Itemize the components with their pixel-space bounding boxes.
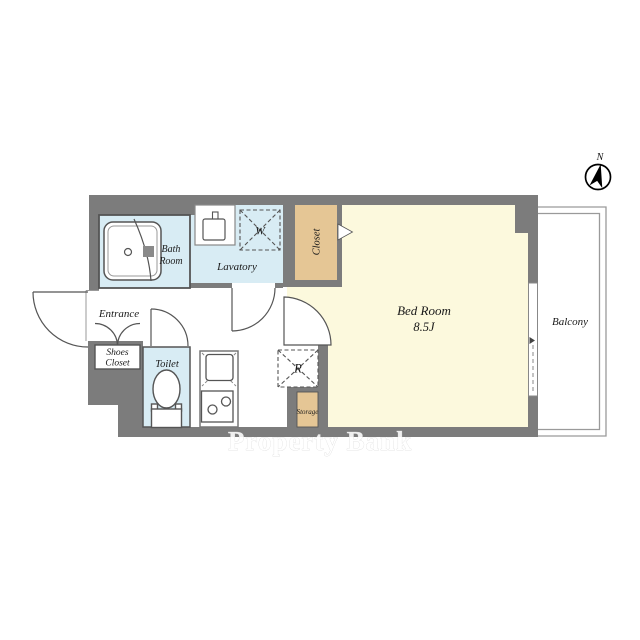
balcony-window: [529, 283, 538, 396]
bath-room-label-line1: Bath: [162, 244, 181, 255]
washbasin-icon: [195, 205, 235, 245]
entrance-porch-outline: [86, 291, 99, 342]
bath-door-step: [143, 246, 154, 257]
floor-plan-image: N Bath Room Lavatory Closet W Bed Room 8…: [0, 0, 640, 640]
closet-label: Closet: [312, 228, 323, 256]
compass-north-label: N: [596, 152, 605, 163]
entrance-door: [33, 292, 88, 347]
bath-room-label-line2: Room: [158, 256, 182, 267]
room-fills: [190, 205, 528, 427]
watermark: Property Bank: [228, 426, 412, 456]
toilet-door: [151, 309, 188, 346]
refrigerator-label: R: [293, 362, 302, 376]
toilet-label: Toilet: [155, 359, 180, 370]
storage-label: Storage: [297, 408, 319, 416]
entrance-label: Entrance: [98, 308, 139, 320]
kitchen-area: [200, 351, 238, 427]
bed-room-label: Bed Room: [397, 303, 451, 318]
lavatory-door: [232, 288, 275, 331]
shoes-closet-label-line1: Shoes: [106, 348, 128, 358]
washing-machine-label: W: [255, 226, 266, 238]
lavatory-label: Lavatory: [216, 261, 257, 273]
toilet-icon: [152, 370, 182, 428]
bed-room-size-label: 8.5J: [413, 320, 436, 334]
shoes-closet-label-line2: Closet: [105, 359, 130, 369]
compass-icon: N: [586, 152, 611, 190]
kitchen-sink-icon: [206, 355, 233, 381]
stove-icon: [202, 391, 234, 422]
balcony-label: Balcony: [552, 316, 588, 328]
